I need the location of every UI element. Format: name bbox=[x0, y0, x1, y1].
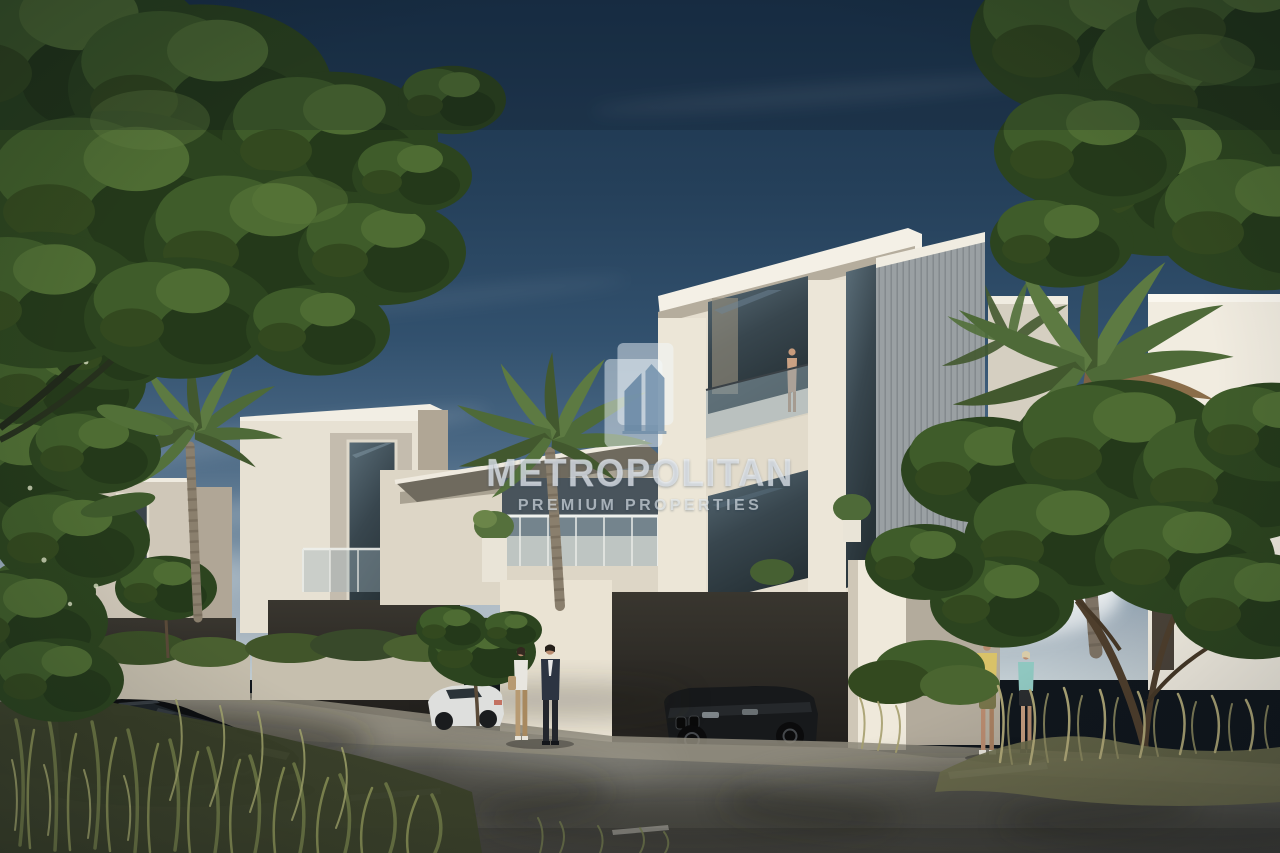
top-sky-darkening bbox=[0, 0, 1280, 130]
property-render-photo: METROPOLITAN PREMIUM PROPERTIES bbox=[0, 0, 1280, 853]
